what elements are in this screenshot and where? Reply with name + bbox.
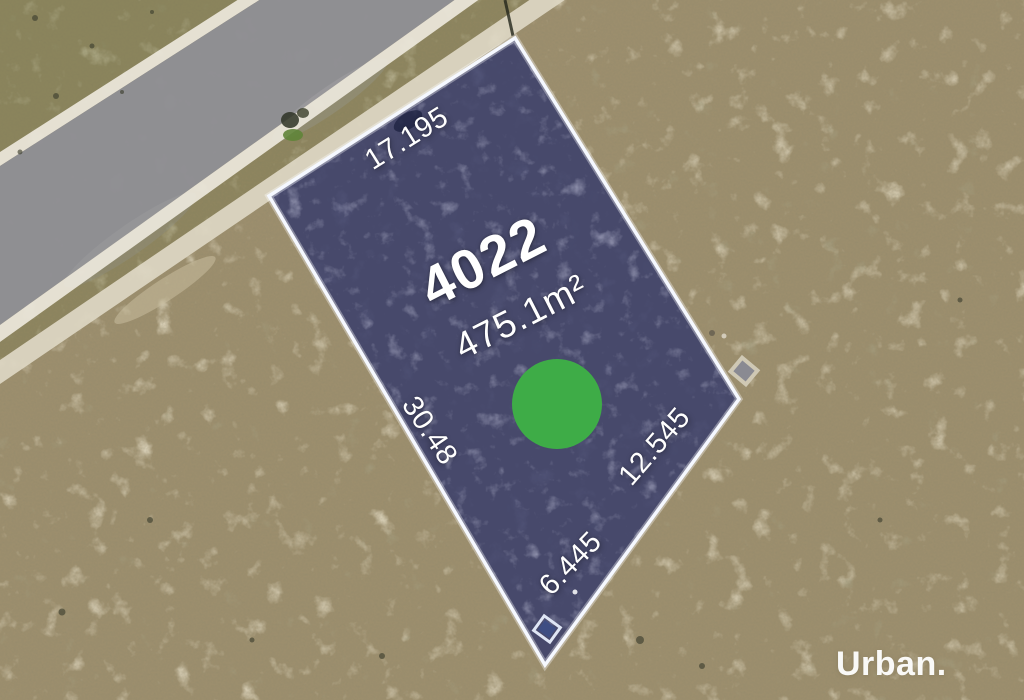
ground-debris-1 [709, 330, 715, 336]
lot-white-dot [573, 590, 578, 595]
lot-green-marker [512, 359, 602, 449]
urban-watermark-logo: Urban. [836, 645, 947, 684]
verge-shrub-dark-2 [297, 108, 309, 118]
verge-shrub-dark [281, 112, 299, 128]
aerial-lot-map: 17.195 4022 475.1m² 30.48 6.445 12.545 U… [0, 0, 1024, 700]
ground-debris-2 [722, 334, 727, 339]
verge-shrub-green [283, 129, 303, 141]
aerial-scene [0, 0, 1024, 700]
